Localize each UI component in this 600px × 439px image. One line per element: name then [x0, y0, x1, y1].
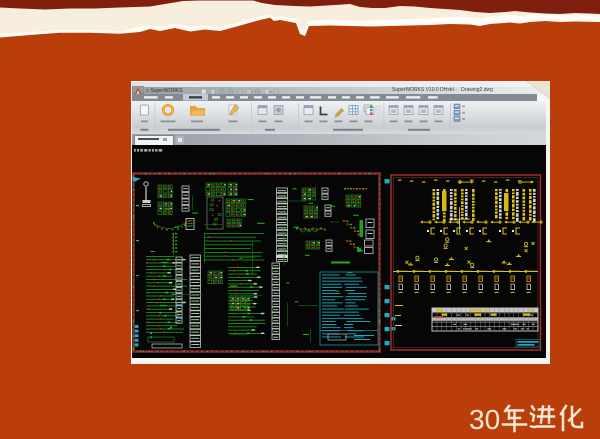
svg-text:30: 30	[469, 404, 500, 435]
